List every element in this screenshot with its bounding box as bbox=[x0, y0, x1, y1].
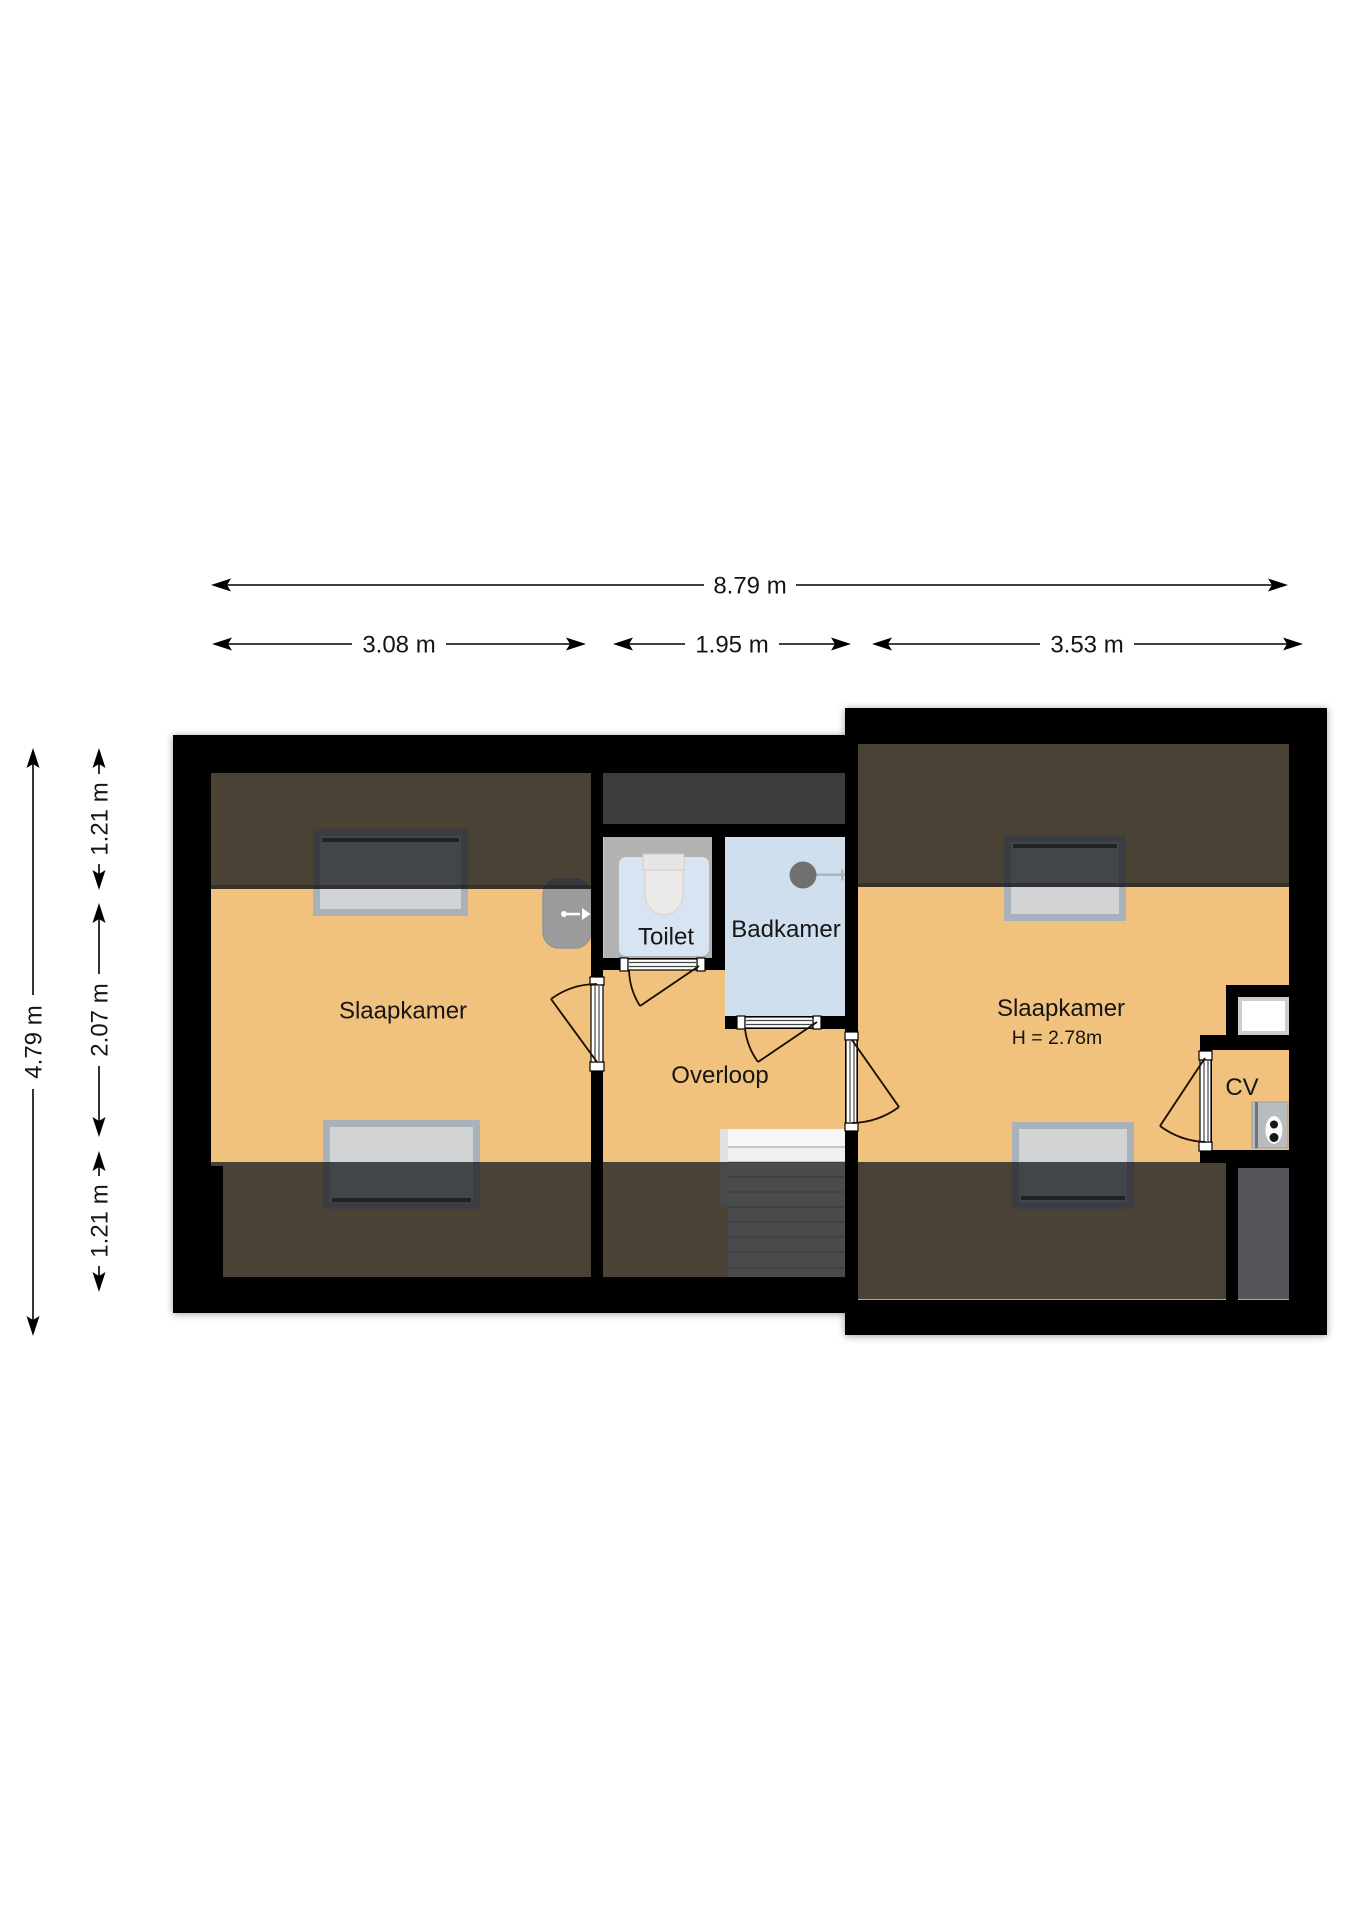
svg-text:1.21 m: 1.21 m bbox=[87, 1184, 114, 1257]
svg-text:Slaapkamer: Slaapkamer bbox=[339, 998, 467, 1025]
svg-text:8.79 m: 8.79 m bbox=[713, 573, 786, 600]
svg-text:2.07 m: 2.07 m bbox=[87, 983, 114, 1056]
svg-text:1.21 m: 1.21 m bbox=[87, 782, 114, 855]
svg-text:CV: CV bbox=[1225, 1074, 1258, 1101]
svg-text:H = 2.78m: H = 2.78m bbox=[1012, 1027, 1103, 1049]
svg-text:Overloop: Overloop bbox=[671, 1062, 768, 1089]
svg-text:Badkamer: Badkamer bbox=[731, 916, 840, 943]
svg-text:3.53 m: 3.53 m bbox=[1050, 632, 1123, 659]
svg-text:3.08 m: 3.08 m bbox=[362, 632, 435, 659]
svg-text:4.79 m: 4.79 m bbox=[21, 1005, 48, 1078]
svg-text:Toilet: Toilet bbox=[638, 924, 694, 951]
svg-text:Slaapkamer: Slaapkamer bbox=[997, 995, 1125, 1022]
svg-text:1.95 m: 1.95 m bbox=[695, 632, 768, 659]
